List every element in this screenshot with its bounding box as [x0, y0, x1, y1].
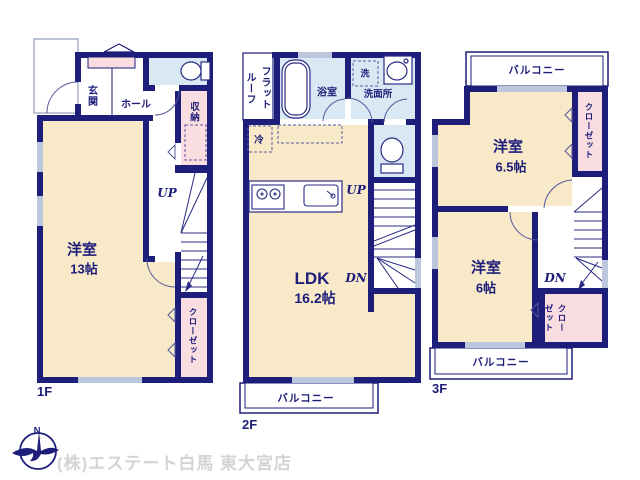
floor-tag-1f: 1F	[37, 384, 52, 399]
stairs-down-3f	[574, 188, 602, 286]
room2-size-label-3f: 6帖	[476, 278, 496, 297]
stairs-down-label-2f: DN	[345, 271, 366, 285]
bathtub-icon	[282, 60, 310, 118]
hall-label: ホール	[121, 96, 151, 111]
ldk-label: LDK	[295, 269, 330, 289]
stairs-up-label-2f: UP	[346, 183, 366, 197]
stairs-up-label-1f: UP	[157, 186, 177, 200]
stairs-down-label-3f: DN	[544, 271, 565, 285]
stairs-up-1f	[181, 173, 207, 289]
sink-icon	[384, 56, 412, 84]
compass-icon	[12, 431, 59, 469]
floor-tag-2f: 2F	[242, 417, 257, 432]
balcony-bottom-label-3f: バルコニー	[472, 355, 529, 370]
floor-tag-3f: 3F	[432, 381, 447, 396]
floorplan-page: 玄関 ホール 収納 UP 洋室 13帖 クローゼット 1F フラットルーフ 浴室…	[0, 0, 640, 480]
bath-label: 浴室	[317, 84, 337, 99]
kitchen-unit	[249, 181, 342, 212]
room1-size-label-3f: 6.5帖	[495, 157, 526, 176]
ldk-size-label: 16.2帖	[294, 288, 335, 308]
shoe-cabinet	[88, 57, 135, 68]
company-watermark: (株)エステート白馬 東大宮店	[57, 449, 292, 474]
flat-roof-label: フラットルーフ	[242, 66, 272, 110]
washroom-label: 洗面所	[364, 86, 393, 100]
fridge-label: 冷	[254, 132, 264, 146]
toilet-icon	[181, 62, 210, 80]
storage-label: 収納	[186, 102, 200, 123]
entrance-label: 玄関	[84, 85, 99, 107]
room-size-label-1f: 13帖	[70, 259, 97, 278]
floor3-plan	[430, 52, 608, 379]
closet-label-1f: クローゼット	[187, 308, 199, 365]
balcony-label-2f: バルコニー	[277, 391, 334, 406]
entrance-porch	[34, 39, 78, 113]
laundry-label: 洗	[360, 67, 369, 80]
room-label-1f: 洋室	[67, 239, 97, 260]
closet2-label-3f: クローゼット	[542, 303, 568, 333]
closet1-label-3f: クローゼット	[583, 103, 595, 160]
room2-label-3f: 洋室	[471, 257, 501, 278]
entrance-marker-icon	[104, 44, 134, 52]
balcony-top-label-3f: バルコニー	[508, 63, 565, 78]
compass-north-label: N	[34, 426, 41, 437]
room1-label-3f: 洋室	[493, 136, 523, 157]
toilet-icon-2f	[381, 138, 403, 173]
